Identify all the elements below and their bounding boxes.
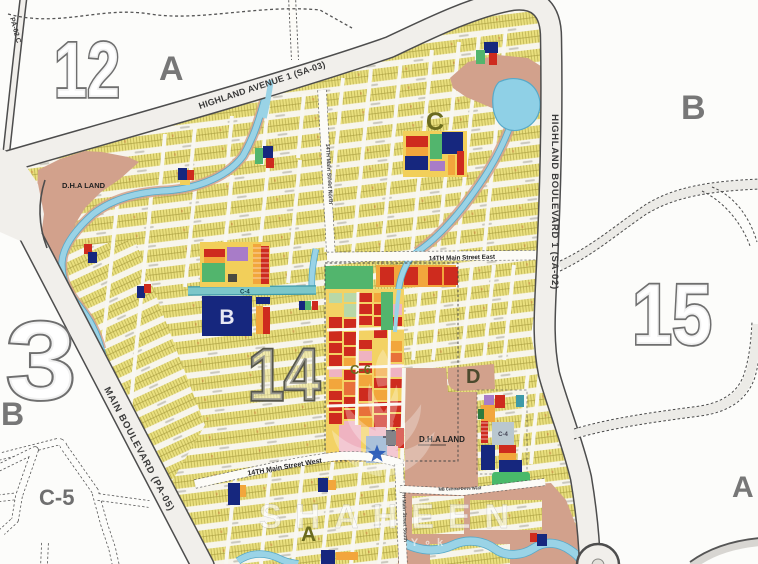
svg-text:14: 14 bbox=[248, 335, 320, 416]
svg-text:D: D bbox=[466, 366, 480, 388]
svg-text:Y∘k: Y∘k bbox=[411, 537, 449, 549]
svg-text:12: 12 bbox=[54, 25, 120, 114]
svg-text:HIGHLAND BOULEVARD 1 (SA-02): HIGHLAND BOULEVARD 1 (SA-02) bbox=[549, 114, 560, 290]
svg-text:D.H.A LAND: D.H.A LAND bbox=[62, 181, 106, 190]
svg-text:B: B bbox=[219, 306, 234, 329]
svg-text:A: A bbox=[159, 50, 184, 88]
svg-text:C-4: C-4 bbox=[240, 290, 250, 296]
svg-text:C: C bbox=[426, 108, 444, 136]
svg-text:C-6: C-6 bbox=[350, 362, 371, 377]
svg-text:C-5: C-5 bbox=[39, 485, 74, 510]
svg-text:SHAHEEN: SHAHEEN bbox=[259, 498, 523, 536]
svg-text:C-4: C-4 bbox=[498, 432, 508, 438]
svg-text:A: A bbox=[732, 471, 754, 504]
svg-text:B: B bbox=[1, 396, 24, 432]
svg-text:B: B bbox=[681, 89, 706, 127]
svg-text:15: 15 bbox=[632, 267, 712, 363]
